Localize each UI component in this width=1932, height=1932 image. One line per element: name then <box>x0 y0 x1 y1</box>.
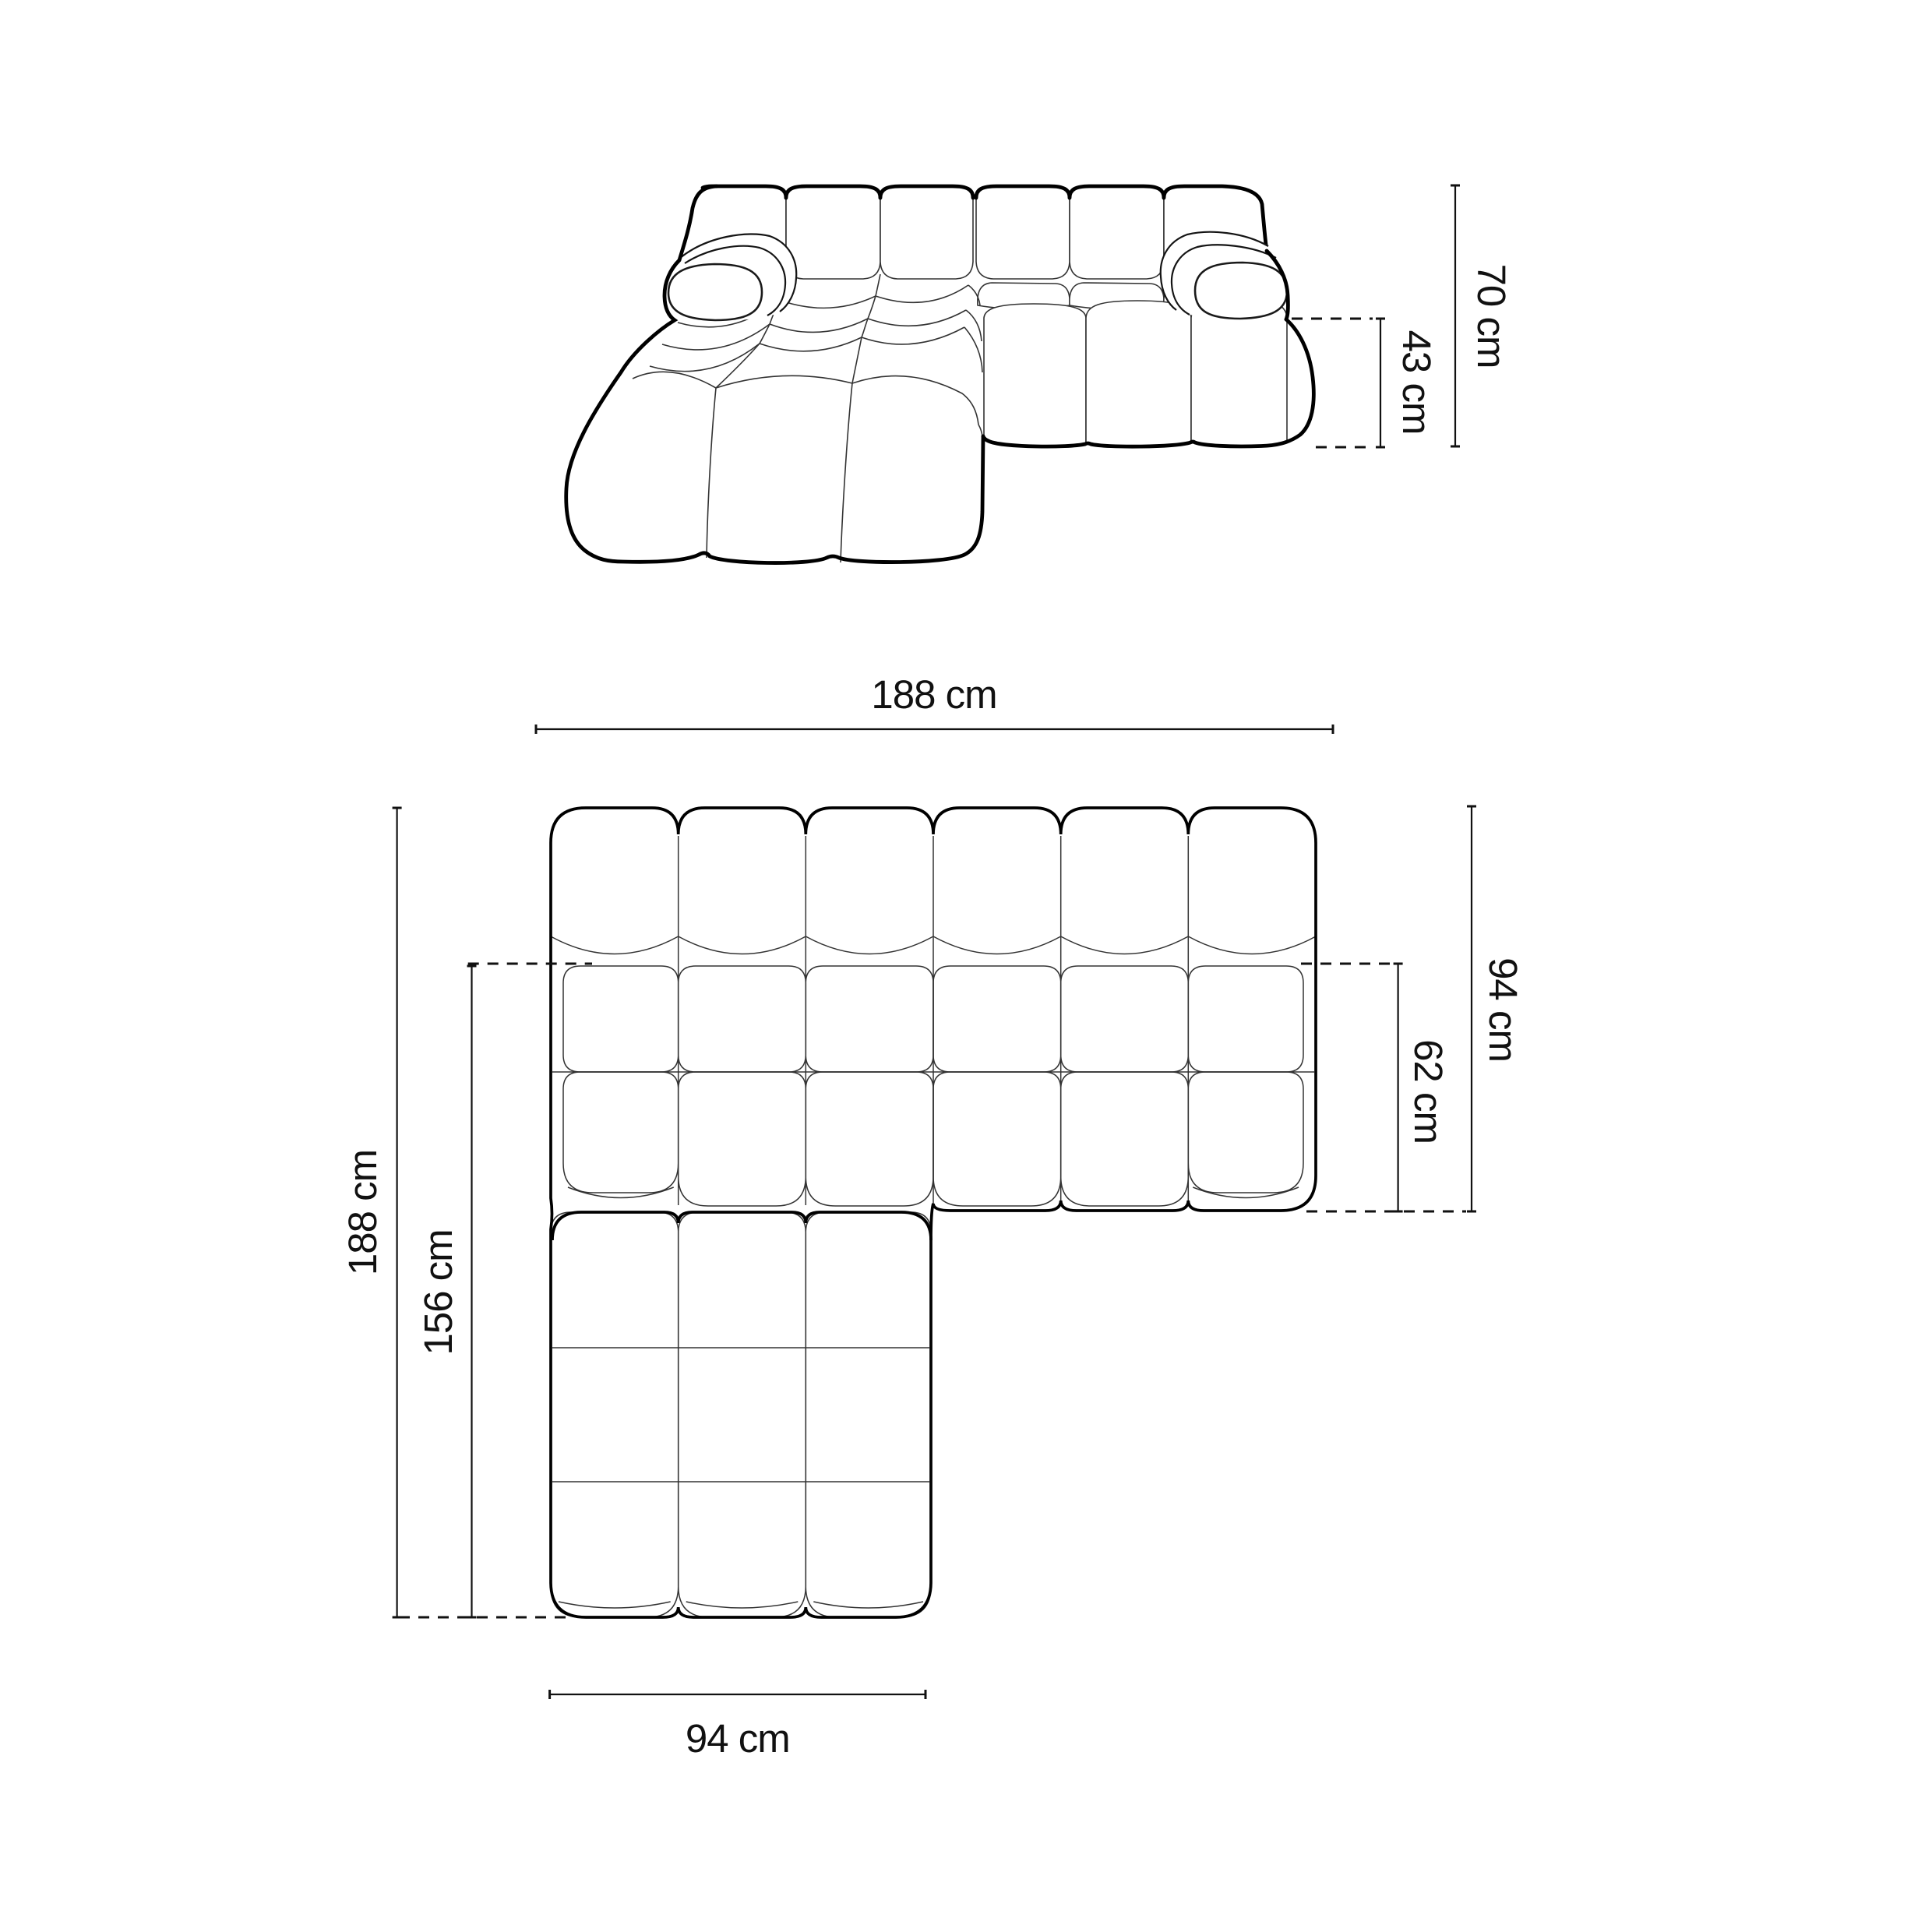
svg-text:188 cm: 188 cm <box>871 672 996 717</box>
svg-text:94 cm: 94 cm <box>686 1716 790 1761</box>
svg-text:43 cm: 43 cm <box>1394 330 1439 435</box>
svg-text:62 cm: 62 cm <box>1406 1039 1451 1144</box>
svg-text:156 cm: 156 cm <box>416 1229 460 1355</box>
svg-text:188 cm: 188 cm <box>340 1150 385 1275</box>
svg-text:94 cm: 94 cm <box>1481 957 1525 1062</box>
svg-text:70 cm: 70 cm <box>1469 264 1514 368</box>
